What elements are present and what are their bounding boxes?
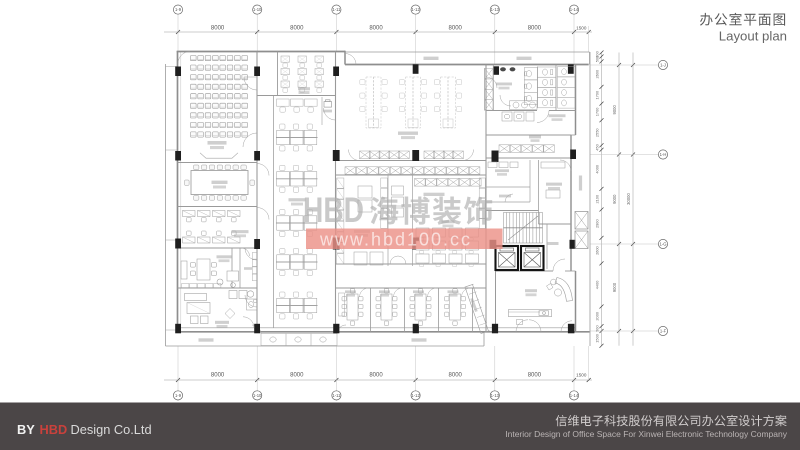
svg-text:1-10: 1-10 (253, 7, 262, 12)
svg-text:1-14: 1-14 (570, 7, 579, 12)
svg-text:HBD: HBD (303, 191, 364, 230)
svg-text:www.hbd100.cc: www.hbd100.cc (319, 230, 472, 250)
svg-text:1-9: 1-9 (175, 393, 182, 398)
svg-text:8000: 8000 (290, 25, 304, 31)
svg-text:BY: BY (17, 422, 35, 437)
svg-text:1-14: 1-14 (570, 393, 579, 398)
svg-text:1500: 1500 (595, 333, 600, 342)
svg-text:8000: 8000 (449, 372, 463, 378)
svg-text:8000: 8000 (290, 372, 304, 378)
svg-text:9000: 9000 (612, 104, 617, 114)
svg-text:2600: 2600 (595, 245, 600, 254)
svg-text:9000: 9000 (612, 282, 617, 292)
svg-text:2000: 2000 (595, 311, 600, 320)
svg-text:8000: 8000 (369, 25, 383, 31)
svg-text:2900: 2900 (595, 219, 600, 228)
svg-text:8000: 8000 (528, 25, 542, 31)
svg-text:1-13: 1-13 (491, 393, 500, 398)
svg-text:1-10: 1-10 (253, 393, 262, 398)
svg-text:30000: 30000 (626, 193, 631, 205)
svg-text:8000: 8000 (528, 372, 542, 378)
svg-text:Layout plan: Layout plan (719, 29, 787, 44)
svg-text:4000: 4000 (595, 164, 600, 173)
svg-text:450: 450 (595, 143, 600, 150)
svg-text:1500: 1500 (576, 372, 587, 377)
svg-text:2550: 2550 (595, 128, 600, 137)
svg-text:Design Co.Ltd: Design Co.Ltd (71, 422, 152, 437)
svg-text:1-11: 1-11 (332, 393, 341, 398)
svg-text:Interior Design of Office Spac: Interior Design of Office Space For Xinw… (505, 429, 787, 439)
svg-text:1-12: 1-12 (411, 7, 420, 12)
svg-text:2600: 2600 (595, 69, 600, 78)
svg-text:1700: 1700 (595, 90, 600, 99)
svg-text:1-13: 1-13 (491, 7, 500, 12)
svg-text:1-11: 1-11 (332, 7, 341, 12)
svg-text:1-G: 1-G (660, 241, 667, 246)
svg-text:8000: 8000 (449, 25, 463, 31)
svg-text:9000: 9000 (612, 194, 617, 204)
svg-text:HBD: HBD (40, 422, 68, 437)
svg-text:1-9: 1-9 (175, 7, 182, 12)
svg-text:8000: 8000 (369, 372, 383, 378)
svg-text:1-H: 1-H (660, 152, 667, 157)
svg-text:1700: 1700 (595, 107, 600, 116)
svg-text:1500: 1500 (576, 25, 587, 30)
svg-text:1-J: 1-J (660, 62, 666, 67)
svg-text:500: 500 (595, 325, 600, 332)
svg-text:2100: 2100 (595, 194, 600, 203)
svg-text:1-12: 1-12 (411, 393, 420, 398)
svg-text:500: 500 (595, 55, 600, 62)
svg-text:8000: 8000 (211, 372, 225, 378)
svg-text:8000: 8000 (211, 25, 225, 31)
svg-text:4400: 4400 (595, 280, 600, 289)
svg-text:1-F: 1-F (660, 328, 667, 333)
